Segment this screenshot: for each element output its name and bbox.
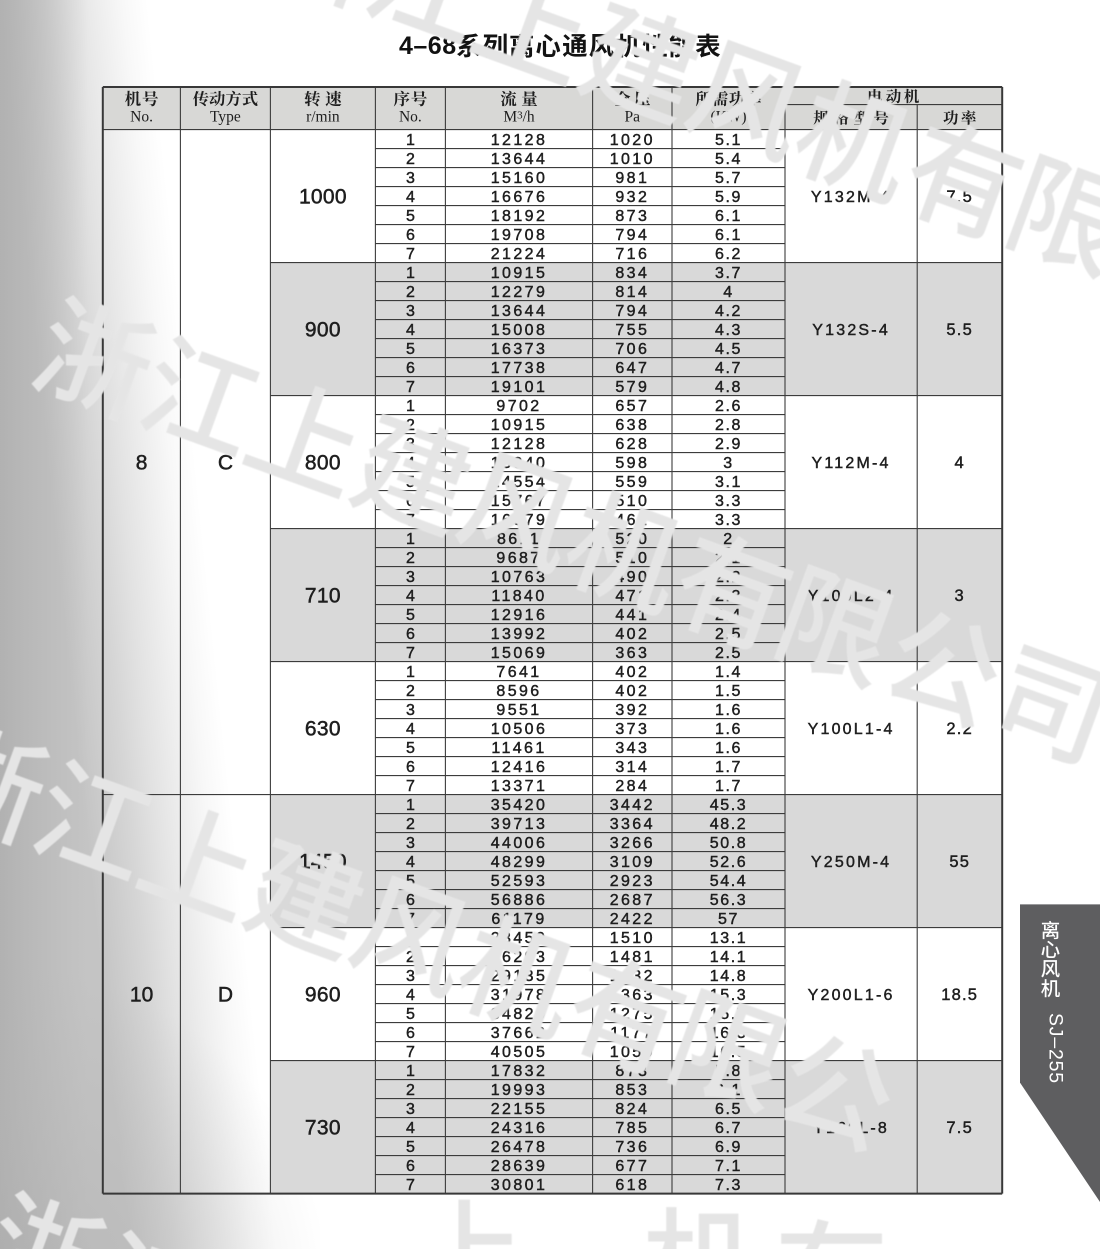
svg-text:6.1: 6.1 (715, 227, 742, 244)
svg-text:3.3: 3.3 (715, 512, 742, 529)
svg-text:710: 710 (305, 584, 341, 607)
svg-text:40505: 40505 (491, 1044, 548, 1061)
svg-text:8: 8 (136, 451, 148, 474)
svg-text:6: 6 (406, 227, 415, 244)
svg-text:1.4: 1.4 (715, 664, 742, 681)
svg-text:628: 628 (615, 436, 649, 453)
svg-text:5.5: 5.5 (946, 321, 973, 339)
svg-text:2: 2 (406, 1082, 415, 1099)
svg-text:52593: 52593 (491, 873, 548, 890)
svg-text:13644: 13644 (491, 303, 548, 320)
svg-text:1: 1 (406, 1063, 415, 1080)
svg-text:4: 4 (406, 588, 415, 605)
svg-text:657: 657 (615, 398, 649, 415)
svg-text:4.7: 4.7 (715, 360, 742, 377)
svg-text:10: 10 (130, 983, 153, 1006)
svg-text:4: 4 (406, 322, 415, 339)
svg-text:7.3: 7.3 (715, 1177, 742, 1194)
svg-text:1: 1 (406, 664, 415, 681)
svg-text:7: 7 (406, 379, 415, 396)
svg-text:1: 1 (406, 398, 415, 415)
svg-text:Y250M-4: Y250M-4 (811, 854, 891, 871)
svg-text:13644: 13644 (491, 151, 548, 168)
svg-text:4: 4 (406, 987, 415, 1004)
svg-text:r/min: r/min (306, 109, 340, 126)
svg-text:5.1: 5.1 (715, 132, 742, 149)
svg-text:7: 7 (406, 1044, 415, 1061)
svg-text:981: 981 (615, 170, 649, 187)
svg-text:5: 5 (406, 740, 415, 757)
svg-text:48.2: 48.2 (710, 816, 748, 833)
svg-text:13.1: 13.1 (710, 930, 748, 947)
svg-text:559: 559 (615, 474, 649, 491)
svg-text:5: 5 (406, 607, 415, 624)
svg-text:17738: 17738 (491, 360, 548, 377)
svg-text:6: 6 (406, 626, 415, 643)
svg-text:22155: 22155 (491, 1101, 548, 1118)
svg-text:9687: 9687 (496, 550, 541, 567)
svg-text:402: 402 (615, 626, 649, 643)
svg-text:26478: 26478 (491, 1139, 548, 1156)
svg-text:3.7: 3.7 (715, 265, 742, 282)
svg-text:2: 2 (406, 683, 415, 700)
svg-text:15160: 15160 (491, 170, 548, 187)
svg-text:4: 4 (723, 284, 734, 301)
svg-text:7: 7 (406, 1177, 415, 1194)
svg-text:4.8: 4.8 (715, 379, 742, 396)
svg-text:1.6: 1.6 (715, 702, 742, 719)
svg-text:785: 785 (615, 1120, 649, 1137)
svg-text:7: 7 (406, 645, 415, 662)
svg-text:Y132S-4: Y132S-4 (812, 322, 890, 339)
svg-text:4: 4 (406, 1120, 415, 1137)
svg-text:19101: 19101 (491, 379, 548, 396)
svg-text:12416: 12416 (491, 759, 548, 776)
svg-text:1.6: 1.6 (715, 740, 742, 757)
svg-text:7.1: 7.1 (715, 1158, 742, 1175)
svg-text:44006: 44006 (491, 835, 548, 852)
svg-text:39713: 39713 (491, 816, 548, 833)
svg-text:14.8: 14.8 (710, 968, 748, 985)
svg-text:598: 598 (615, 455, 649, 472)
svg-text:2.9: 2.9 (715, 436, 742, 453)
svg-text:9551: 9551 (496, 702, 541, 719)
svg-text:4: 4 (406, 854, 415, 871)
svg-text:3: 3 (723, 455, 734, 472)
svg-text:2.6: 2.6 (715, 398, 742, 415)
svg-text:2: 2 (406, 550, 415, 567)
svg-text:9702: 9702 (496, 398, 541, 415)
svg-text:56.3: 56.3 (710, 892, 748, 909)
svg-text:343: 343 (615, 740, 649, 757)
svg-text:960: 960 (305, 983, 341, 1006)
svg-text:12916: 12916 (491, 607, 548, 624)
svg-text:14.1: 14.1 (710, 949, 748, 966)
svg-text:7.5: 7.5 (946, 1119, 973, 1137)
svg-text:18.5: 18.5 (941, 986, 978, 1004)
svg-text:1020: 1020 (610, 132, 655, 149)
svg-text:6: 6 (406, 360, 415, 377)
svg-text:5.7: 5.7 (715, 170, 742, 187)
svg-text:4: 4 (955, 454, 965, 472)
svg-text:4: 4 (406, 721, 415, 738)
svg-text:2687: 2687 (610, 892, 655, 909)
svg-text:3: 3 (955, 587, 965, 605)
svg-text:19708: 19708 (491, 227, 548, 244)
svg-text:55: 55 (949, 853, 970, 871)
svg-text:19993: 19993 (491, 1082, 548, 1099)
svg-text:706: 706 (615, 341, 649, 358)
svg-text:16676: 16676 (491, 189, 548, 206)
svg-text:873: 873 (615, 208, 649, 225)
svg-text:3: 3 (406, 170, 415, 187)
svg-text:61179: 61179 (491, 911, 546, 928)
svg-text:13371: 13371 (491, 778, 548, 795)
svg-text:284: 284 (615, 778, 649, 795)
svg-text:1.7: 1.7 (715, 759, 742, 776)
svg-text:3442: 3442 (610, 797, 655, 814)
svg-text:900: 900 (305, 318, 341, 341)
svg-text:755: 755 (615, 322, 649, 339)
svg-text:3: 3 (406, 835, 415, 852)
svg-text:794: 794 (615, 227, 649, 244)
svg-text:814: 814 (615, 284, 649, 301)
svg-text:677: 677 (615, 1158, 649, 1175)
svg-text:7: 7 (406, 246, 415, 263)
svg-text:5: 5 (406, 1139, 415, 1156)
svg-text:4.3: 4.3 (715, 322, 742, 339)
svg-text:3: 3 (406, 1101, 415, 1118)
svg-text:1510: 1510 (610, 930, 655, 947)
svg-text:56886: 56886 (491, 892, 548, 909)
svg-text:Y112M-4: Y112M-4 (812, 455, 891, 472)
svg-text:3: 3 (406, 968, 415, 985)
svg-text:24316: 24316 (491, 1120, 548, 1137)
svg-text:10915: 10915 (491, 417, 548, 434)
svg-text:6.7: 6.7 (715, 1120, 742, 1137)
svg-text:618: 618 (615, 1177, 649, 1194)
svg-text:54.4: 54.4 (710, 873, 748, 890)
svg-text:11840: 11840 (491, 588, 546, 605)
svg-text:5: 5 (406, 1006, 415, 1023)
svg-text:No.: No. (130, 109, 153, 126)
svg-text:6.9: 6.9 (715, 1139, 742, 1156)
svg-text:6: 6 (406, 1025, 415, 1042)
svg-text:17832: 17832 (491, 1063, 548, 1080)
svg-text:4: 4 (406, 189, 415, 206)
svg-text:30801: 30801 (491, 1177, 548, 1194)
svg-text:3: 3 (406, 569, 415, 586)
svg-text:402: 402 (615, 664, 649, 681)
svg-text:8611: 8611 (497, 531, 541, 548)
svg-text:2: 2 (406, 151, 415, 168)
svg-text:1: 1 (406, 531, 415, 548)
svg-text:730: 730 (305, 1116, 341, 1139)
svg-text:16373: 16373 (491, 341, 548, 358)
svg-text:12128: 12128 (491, 132, 548, 149)
svg-text:57: 57 (718, 911, 739, 928)
svg-text:1: 1 (406, 265, 415, 282)
svg-text:1000: 1000 (299, 185, 347, 208)
svg-text:Type: Type (210, 109, 241, 126)
svg-text:363: 363 (615, 645, 649, 662)
svg-text:1.7: 1.7 (715, 778, 742, 795)
svg-text:2: 2 (406, 816, 415, 833)
svg-text:SJ–255: SJ–255 (1045, 1013, 1067, 1084)
svg-text:35420: 35420 (491, 797, 548, 814)
svg-text:3: 3 (406, 303, 415, 320)
svg-text:10763: 10763 (491, 569, 548, 586)
svg-text:48299: 48299 (491, 854, 548, 871)
svg-text:18192: 18192 (491, 208, 548, 225)
svg-text:28639: 28639 (491, 1158, 548, 1175)
svg-text:402: 402 (615, 683, 649, 700)
svg-text:794: 794 (615, 303, 649, 320)
svg-text:3.1: 3.1 (715, 474, 742, 491)
svg-text:12128: 12128 (491, 436, 548, 453)
svg-text:10915: 10915 (491, 265, 548, 282)
svg-text:3.3: 3.3 (715, 493, 742, 510)
svg-text:834: 834 (615, 265, 649, 282)
svg-text:15008: 15008 (491, 322, 548, 339)
svg-text:1010: 1010 (610, 151, 655, 168)
svg-text:12279: 12279 (491, 284, 548, 301)
svg-text:3109: 3109 (610, 854, 655, 871)
svg-text:7: 7 (406, 778, 415, 795)
svg-text:3: 3 (406, 702, 415, 719)
svg-text:800: 800 (305, 451, 341, 474)
svg-text:647: 647 (615, 360, 649, 377)
svg-text:D: D (218, 983, 233, 1006)
svg-text:932: 932 (615, 189, 649, 206)
svg-text:Y200L1-6: Y200L1-6 (808, 987, 895, 1004)
svg-text:736: 736 (615, 1139, 649, 1156)
svg-text:1.5: 1.5 (715, 683, 742, 700)
svg-text:5: 5 (406, 341, 415, 358)
svg-text:638: 638 (615, 417, 649, 434)
svg-text:13992: 13992 (491, 626, 548, 643)
svg-text:6: 6 (406, 759, 415, 776)
svg-text:392: 392 (615, 702, 649, 719)
svg-text:2923: 2923 (610, 873, 655, 890)
svg-text:45.3: 45.3 (710, 797, 748, 814)
svg-text:6.1: 6.1 (715, 208, 742, 225)
svg-text:314: 314 (615, 759, 649, 776)
svg-text:716: 716 (615, 246, 649, 263)
svg-text:50.8: 50.8 (710, 835, 748, 852)
svg-text:2.8: 2.8 (715, 417, 742, 434)
svg-text:11461: 11461 (491, 740, 546, 757)
svg-text:373: 373 (615, 721, 649, 738)
svg-text:2422: 2422 (610, 911, 655, 928)
svg-text:579: 579 (615, 379, 649, 396)
svg-text:5.4: 5.4 (715, 151, 742, 168)
svg-text:6: 6 (406, 1158, 415, 1175)
svg-text:630: 630 (305, 717, 341, 740)
svg-text:2: 2 (406, 284, 415, 301)
svg-text:3266: 3266 (610, 835, 655, 852)
svg-text:853: 853 (615, 1082, 649, 1099)
svg-text:No.: No. (399, 109, 422, 126)
svg-text:6.2: 6.2 (715, 246, 742, 263)
svg-text:15069: 15069 (491, 645, 548, 662)
svg-text:5.9: 5.9 (715, 189, 742, 206)
svg-text:3364: 3364 (610, 816, 655, 833)
svg-text:6.5: 6.5 (715, 1101, 742, 1118)
svg-text:824: 824 (615, 1101, 649, 1118)
svg-text:1: 1 (406, 797, 415, 814)
svg-text:52.6: 52.6 (710, 854, 748, 871)
svg-text:1.6: 1.6 (715, 721, 742, 738)
svg-text:1: 1 (406, 132, 415, 149)
svg-text:4.2: 4.2 (715, 303, 742, 320)
svg-text:10506: 10506 (491, 721, 548, 738)
svg-text:4.5: 4.5 (715, 341, 742, 358)
svg-text:5: 5 (406, 208, 415, 225)
svg-text:7641: 7641 (496, 664, 541, 681)
svg-text:8596: 8596 (496, 683, 541, 700)
svg-text:Y100L1-4: Y100L1-4 (808, 721, 895, 738)
svg-text:21224: 21224 (491, 246, 548, 263)
